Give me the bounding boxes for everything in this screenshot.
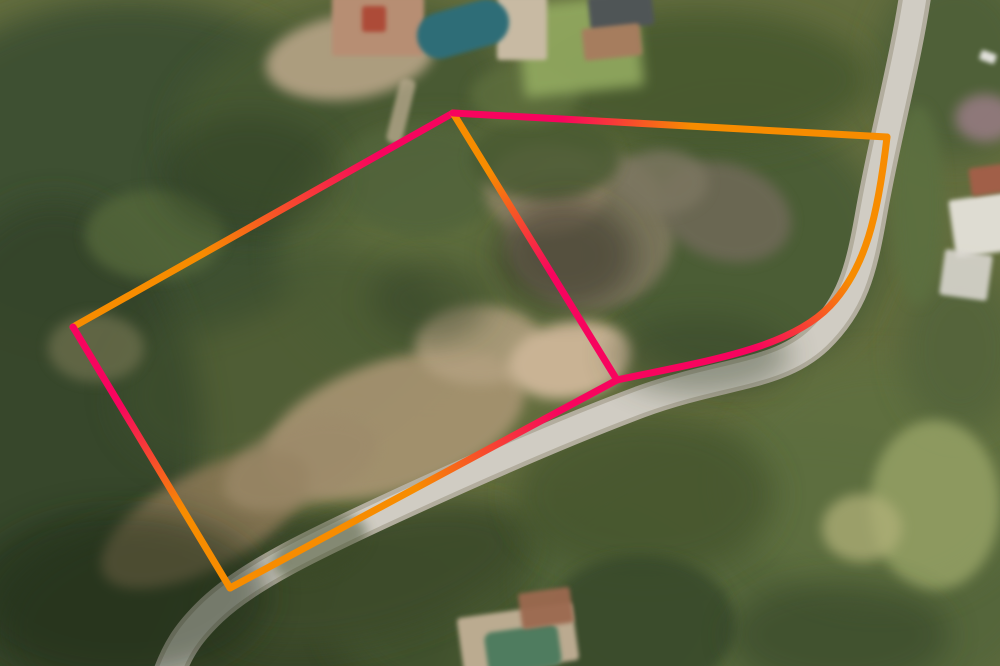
satellite-map-view [0,0,1000,666]
aerial-svg [0,0,1000,666]
